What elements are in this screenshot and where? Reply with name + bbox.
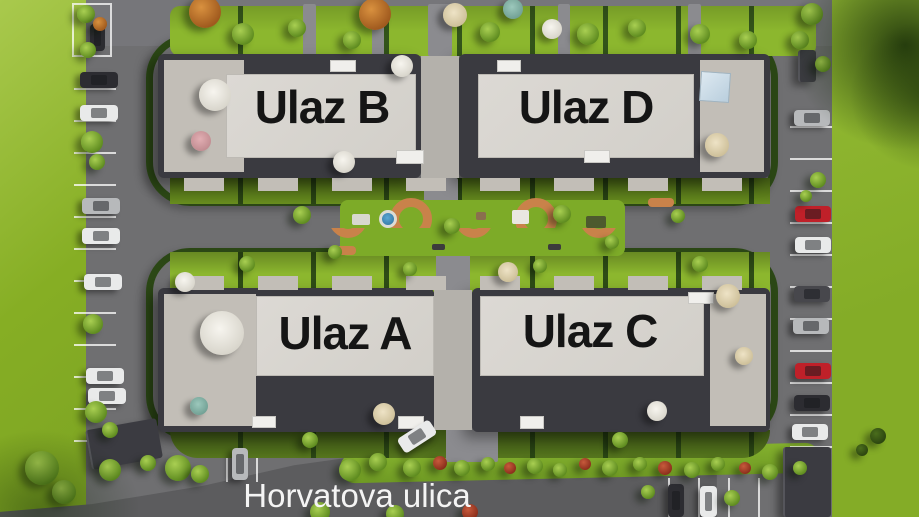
playground-equipment bbox=[512, 210, 529, 224]
tree bbox=[93, 17, 107, 31]
roof-skylight bbox=[688, 292, 714, 304]
street-name-label: Horvatova ulica bbox=[243, 477, 470, 515]
garden-terrace-unit bbox=[628, 178, 668, 191]
parked-car bbox=[794, 286, 830, 302]
car-windshield bbox=[805, 240, 821, 250]
tree bbox=[403, 262, 417, 276]
parasol-umbrella bbox=[716, 284, 740, 308]
garden-terrace-unit bbox=[332, 276, 372, 290]
parasol-umbrella bbox=[373, 403, 395, 425]
shelter-roof bbox=[798, 50, 816, 82]
tree bbox=[684, 462, 700, 478]
roof-skylight bbox=[396, 150, 424, 164]
tree bbox=[89, 154, 105, 170]
garden-terrace-unit bbox=[554, 178, 594, 191]
roof-skylight bbox=[252, 416, 276, 428]
tree bbox=[810, 172, 826, 188]
tree bbox=[232, 23, 254, 45]
garden-terrace-unit bbox=[258, 276, 298, 290]
tree bbox=[99, 459, 121, 481]
terrace-canopy bbox=[699, 71, 731, 103]
garden-terrace-unit bbox=[554, 276, 594, 290]
tree bbox=[403, 459, 421, 477]
tree bbox=[793, 461, 807, 475]
garden-terrace-unit bbox=[406, 276, 446, 290]
car-windshield bbox=[805, 209, 821, 219]
roof-skylight bbox=[584, 150, 610, 163]
parasol-umbrella bbox=[391, 55, 413, 77]
north-row-stair-connector bbox=[421, 56, 459, 178]
playground-path-ring bbox=[390, 198, 432, 228]
parked-car bbox=[232, 448, 248, 480]
tree bbox=[856, 444, 868, 456]
tree bbox=[800, 190, 812, 202]
tree bbox=[444, 218, 460, 234]
parasol-umbrella bbox=[190, 397, 208, 415]
parasol-umbrella bbox=[200, 311, 244, 355]
tree bbox=[605, 235, 619, 249]
red-bush bbox=[658, 461, 672, 475]
playground-path-arc bbox=[390, 198, 450, 228]
parasol-umbrella bbox=[542, 19, 562, 39]
tree bbox=[102, 422, 118, 438]
tree bbox=[77, 5, 95, 23]
red-bush bbox=[433, 456, 447, 470]
tree bbox=[870, 428, 886, 444]
garden-terrace-unit bbox=[332, 178, 372, 191]
parked-car bbox=[795, 237, 831, 253]
tree bbox=[165, 455, 191, 481]
parked-car bbox=[668, 484, 684, 517]
tree bbox=[85, 401, 107, 423]
parasol-umbrella bbox=[498, 262, 518, 282]
tree bbox=[553, 205, 571, 223]
tree bbox=[191, 465, 209, 483]
parked-car bbox=[794, 110, 830, 126]
tree bbox=[369, 453, 387, 471]
tree bbox=[690, 24, 710, 44]
tree bbox=[480, 22, 500, 42]
tree bbox=[692, 256, 708, 272]
red-bush bbox=[504, 462, 516, 474]
car-windshield bbox=[804, 398, 820, 408]
tree bbox=[328, 245, 342, 259]
playground-equipment bbox=[548, 244, 561, 250]
car-windshield bbox=[805, 366, 821, 376]
tree bbox=[140, 455, 156, 471]
parasol-umbrella bbox=[199, 79, 231, 111]
tree bbox=[739, 31, 757, 49]
playground-equipment bbox=[352, 214, 370, 225]
red-bush bbox=[739, 462, 751, 474]
south-row-stair-connector bbox=[434, 290, 472, 430]
parked-car bbox=[793, 318, 829, 334]
tree bbox=[791, 31, 809, 49]
tree bbox=[343, 31, 361, 49]
playground-equipment bbox=[586, 216, 606, 228]
parked-car bbox=[84, 274, 122, 290]
car-windshield bbox=[97, 371, 114, 381]
tree bbox=[83, 314, 103, 334]
playground-trampoline bbox=[379, 210, 397, 228]
car-windshield bbox=[672, 491, 679, 511]
tree bbox=[454, 460, 470, 476]
building-label-ulaz-c: Ulaz C bbox=[523, 304, 658, 358]
car-windshield bbox=[236, 454, 243, 473]
building-label-ulaz-b: Ulaz B bbox=[255, 80, 390, 134]
car-windshield bbox=[804, 113, 820, 123]
parked-car bbox=[80, 105, 118, 121]
parked-car bbox=[80, 72, 118, 88]
car-windshield bbox=[93, 231, 110, 241]
roof-skylight bbox=[520, 416, 544, 429]
parasol-umbrella bbox=[333, 151, 355, 173]
parked-car bbox=[86, 368, 124, 384]
tree bbox=[52, 480, 76, 504]
tree bbox=[633, 457, 647, 471]
parked-car bbox=[700, 486, 717, 517]
garden-terrace-unit bbox=[702, 178, 742, 191]
building-label-ulaz-a: Ulaz A bbox=[279, 306, 412, 360]
playground-path-ring bbox=[455, 228, 493, 238]
car-windshield bbox=[91, 75, 108, 85]
parasol-umbrella bbox=[647, 401, 667, 421]
car-windshield bbox=[802, 427, 818, 437]
playground-equipment bbox=[432, 244, 445, 250]
parked-car bbox=[82, 228, 120, 244]
parasol-umbrella bbox=[191, 131, 211, 151]
roof-skylight bbox=[497, 60, 521, 72]
garden-terrace-unit bbox=[480, 178, 520, 191]
car-windshield bbox=[95, 277, 112, 287]
tree bbox=[671, 209, 685, 223]
building-label-ulaz-d: Ulaz D bbox=[519, 80, 654, 134]
car-windshield bbox=[91, 108, 108, 118]
car-windshield bbox=[99, 391, 116, 401]
parasol-umbrella bbox=[175, 272, 195, 292]
garden-terrace-unit bbox=[258, 178, 298, 191]
car-windshield bbox=[705, 492, 712, 511]
tree bbox=[628, 19, 646, 37]
roof-skylight bbox=[330, 60, 356, 72]
tree bbox=[533, 259, 547, 273]
tree bbox=[239, 256, 255, 272]
tree bbox=[724, 490, 740, 506]
tree bbox=[25, 451, 59, 485]
garden-terrace-unit bbox=[406, 178, 446, 191]
tree bbox=[527, 458, 543, 474]
tree bbox=[612, 432, 628, 448]
shelter-roof bbox=[783, 447, 831, 517]
car-windshield bbox=[94, 29, 101, 45]
tree bbox=[302, 432, 318, 448]
car-windshield bbox=[804, 289, 820, 299]
tree bbox=[641, 485, 655, 499]
tree bbox=[553, 463, 567, 477]
parked-car bbox=[82, 198, 120, 214]
site-plan-render: Ulaz B Ulaz D Ulaz A Ulaz C Horvatova ul… bbox=[0, 0, 919, 517]
parked-car bbox=[794, 395, 830, 411]
tree bbox=[81, 131, 103, 153]
parasol-umbrella bbox=[443, 3, 467, 27]
playground-path-arc bbox=[455, 228, 511, 256]
parasol-umbrella bbox=[735, 347, 753, 365]
car-windshield bbox=[93, 201, 110, 211]
tree bbox=[80, 42, 96, 58]
parasol-umbrella bbox=[705, 133, 729, 157]
tree bbox=[815, 56, 831, 72]
garden-terrace-unit bbox=[628, 276, 668, 290]
red-bush bbox=[579, 458, 591, 470]
parked-car bbox=[795, 363, 831, 379]
parked-car bbox=[795, 206, 831, 222]
playground-equipment bbox=[476, 212, 486, 220]
car-windshield bbox=[803, 321, 819, 331]
tree bbox=[577, 23, 599, 45]
garden-terrace-unit bbox=[184, 178, 224, 191]
parasol-umbrella bbox=[503, 0, 523, 19]
parked-car bbox=[792, 424, 828, 440]
tree bbox=[288, 19, 306, 37]
tree bbox=[762, 464, 778, 480]
tree bbox=[801, 3, 823, 25]
playground-path-stub bbox=[648, 198, 674, 207]
tree bbox=[293, 206, 311, 224]
tree bbox=[711, 457, 725, 471]
tree bbox=[602, 460, 618, 476]
tree bbox=[481, 457, 495, 471]
playground-path-ring bbox=[329, 228, 367, 238]
